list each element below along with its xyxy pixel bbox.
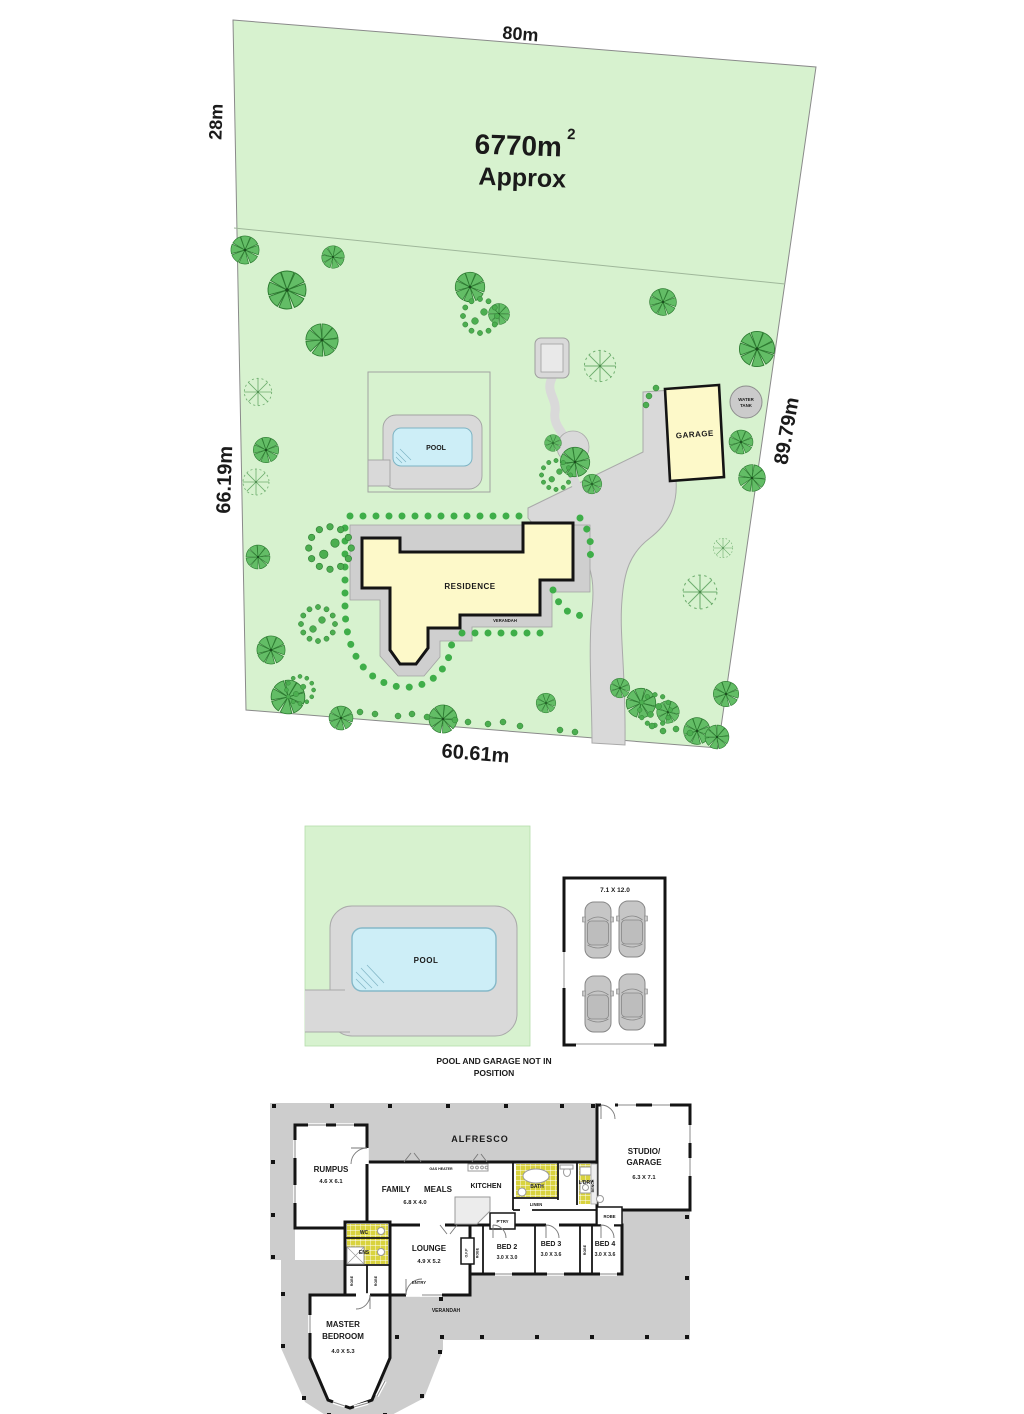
ofp-label: O.F.P (465, 1248, 469, 1258)
garden-shed-inner (541, 344, 563, 372)
robe-label: ROBE (476, 1247, 480, 1258)
tree-icon (584, 350, 615, 381)
bed4-label: BED 4 (595, 1241, 616, 1248)
tree-icon (243, 469, 269, 495)
hws-unit (597, 1196, 604, 1203)
site-plan: POOL RESIDENCE VERANDAH GARAGE WATER TAN… (205, 20, 816, 768)
area-approx-label: Approx (478, 162, 567, 193)
note-line1: POOL AND GARAGE NOT IN (436, 1056, 551, 1066)
studio-size: 6.3 X 7.1 (632, 1175, 656, 1181)
ptry-label: P'TRY (496, 1219, 508, 1224)
alfresco-label: ALFRESCO (451, 1134, 509, 1144)
family-label: FAMILY (382, 1185, 411, 1194)
studio-label-1: STUDIO/ (628, 1147, 661, 1156)
family-size: 6.8 X 4.0 (403, 1200, 426, 1206)
tree-icon (244, 378, 271, 405)
garage-size-label: 7.1 X 12.0 (600, 887, 630, 894)
floor-plan: ALFRESCO (270, 1103, 690, 1414)
bed3-label: BED 3 (541, 1241, 562, 1248)
garage-detail: 7.1 X 12.0 (561, 878, 665, 1048)
wc-label: WC (360, 1230, 369, 1236)
toilet-tank (560, 1165, 573, 1169)
property-plan-page: POOL RESIDENCE VERANDAH GARAGE WATER TAN… (0, 0, 1024, 1414)
ens-basin (378, 1249, 385, 1256)
pool-detail-paving-arm (305, 990, 350, 1032)
lounge-size: 4.9 X 5.2 (417, 1259, 440, 1265)
tree-icon (253, 437, 279, 463)
tree-icon (683, 575, 717, 609)
water-tank-label-1: WATER (738, 397, 754, 402)
property-boundary (233, 20, 816, 748)
site-verandah-label: VERANDAH (493, 618, 517, 623)
room-rumpus (295, 1125, 367, 1228)
tree-icon (610, 678, 630, 698)
bath-label: BATH (530, 1184, 544, 1190)
area-label: 6770m (474, 128, 562, 162)
car-icon (617, 974, 648, 1030)
tree-icon (257, 636, 285, 665)
garage-detail-walls (564, 878, 665, 1045)
dim-left-lower: 66.19m (213, 446, 237, 515)
robe-label: ROBE (603, 1214, 615, 1219)
linen-label: LINEN (530, 1202, 543, 1207)
master-label-1: MASTER (326, 1320, 360, 1329)
tree-icon (582, 474, 602, 494)
tree-icon (536, 693, 556, 713)
tree-icon (713, 538, 733, 558)
tree-icon (231, 236, 259, 265)
pool-detail: POOL POOL AND GARAGE NOT IN POSITION (305, 826, 552, 1078)
pool-paving-arm (368, 460, 390, 486)
robe-label: ROBE (350, 1275, 354, 1286)
residence-label: RESIDENCE (444, 582, 495, 591)
water-tank (730, 386, 762, 418)
studio-label-2: GARAGE (626, 1158, 662, 1167)
bench-label: BENCH (591, 1179, 595, 1192)
lounge-label: LOUNGE (412, 1244, 447, 1253)
dim-bottom: 60.61m (441, 740, 510, 767)
master-size: 4.0 X 5.3 (331, 1349, 355, 1355)
pool-detail-label: POOL (414, 956, 439, 965)
kitchen-label: KITCHEN (470, 1183, 501, 1190)
robe-label: ROBE (583, 1244, 587, 1255)
bathtub (523, 1169, 549, 1183)
bed3-size: 3.0 X 3.6 (541, 1252, 562, 1258)
wc-toilet (378, 1228, 385, 1235)
site-pool-label: POOL (426, 445, 447, 452)
tree-icon (713, 681, 739, 707)
car-icon (583, 976, 614, 1032)
dim-right: 89.79m (770, 396, 803, 467)
tree-icon (544, 434, 561, 451)
meals-label: MEALS (424, 1185, 453, 1194)
gas-heater-label: GAS HEATER (429, 1167, 453, 1171)
rumpus-size: 4.6 X 6.1 (319, 1179, 343, 1185)
ens-label: ENS (359, 1250, 370, 1256)
laundry-trough (580, 1167, 591, 1175)
tree-icon (649, 289, 676, 316)
car-icon (583, 902, 614, 958)
dim-top: 80m (502, 23, 540, 46)
car-icon (617, 901, 648, 957)
robe-label: ROBE (374, 1275, 378, 1286)
rumpus-label: RUMPUS (314, 1165, 349, 1174)
note-line2: POSITION (474, 1068, 515, 1078)
plan-canvas: POOL RESIDENCE VERANDAH GARAGE WATER TAN… (0, 0, 1024, 1414)
tree-icon (329, 706, 353, 730)
bed2-label: BED 2 (497, 1244, 518, 1251)
bed2-size: 3.0 X 3.0 (497, 1255, 518, 1261)
master-label-2: BEDROOM (322, 1332, 364, 1341)
tree-icon (729, 430, 753, 454)
fp-verandah-label: VERANDAH (432, 1308, 461, 1314)
bed4-size: 3.0 X 3.6 (595, 1252, 616, 1258)
tree-icon (268, 271, 306, 310)
entry-label: ENTRY (412, 1280, 426, 1285)
dim-left-upper: 28m (205, 103, 226, 140)
water-tank-label-2: TANK (740, 403, 753, 408)
area-sup: 2 (567, 126, 576, 143)
bath-basin (518, 1188, 526, 1196)
